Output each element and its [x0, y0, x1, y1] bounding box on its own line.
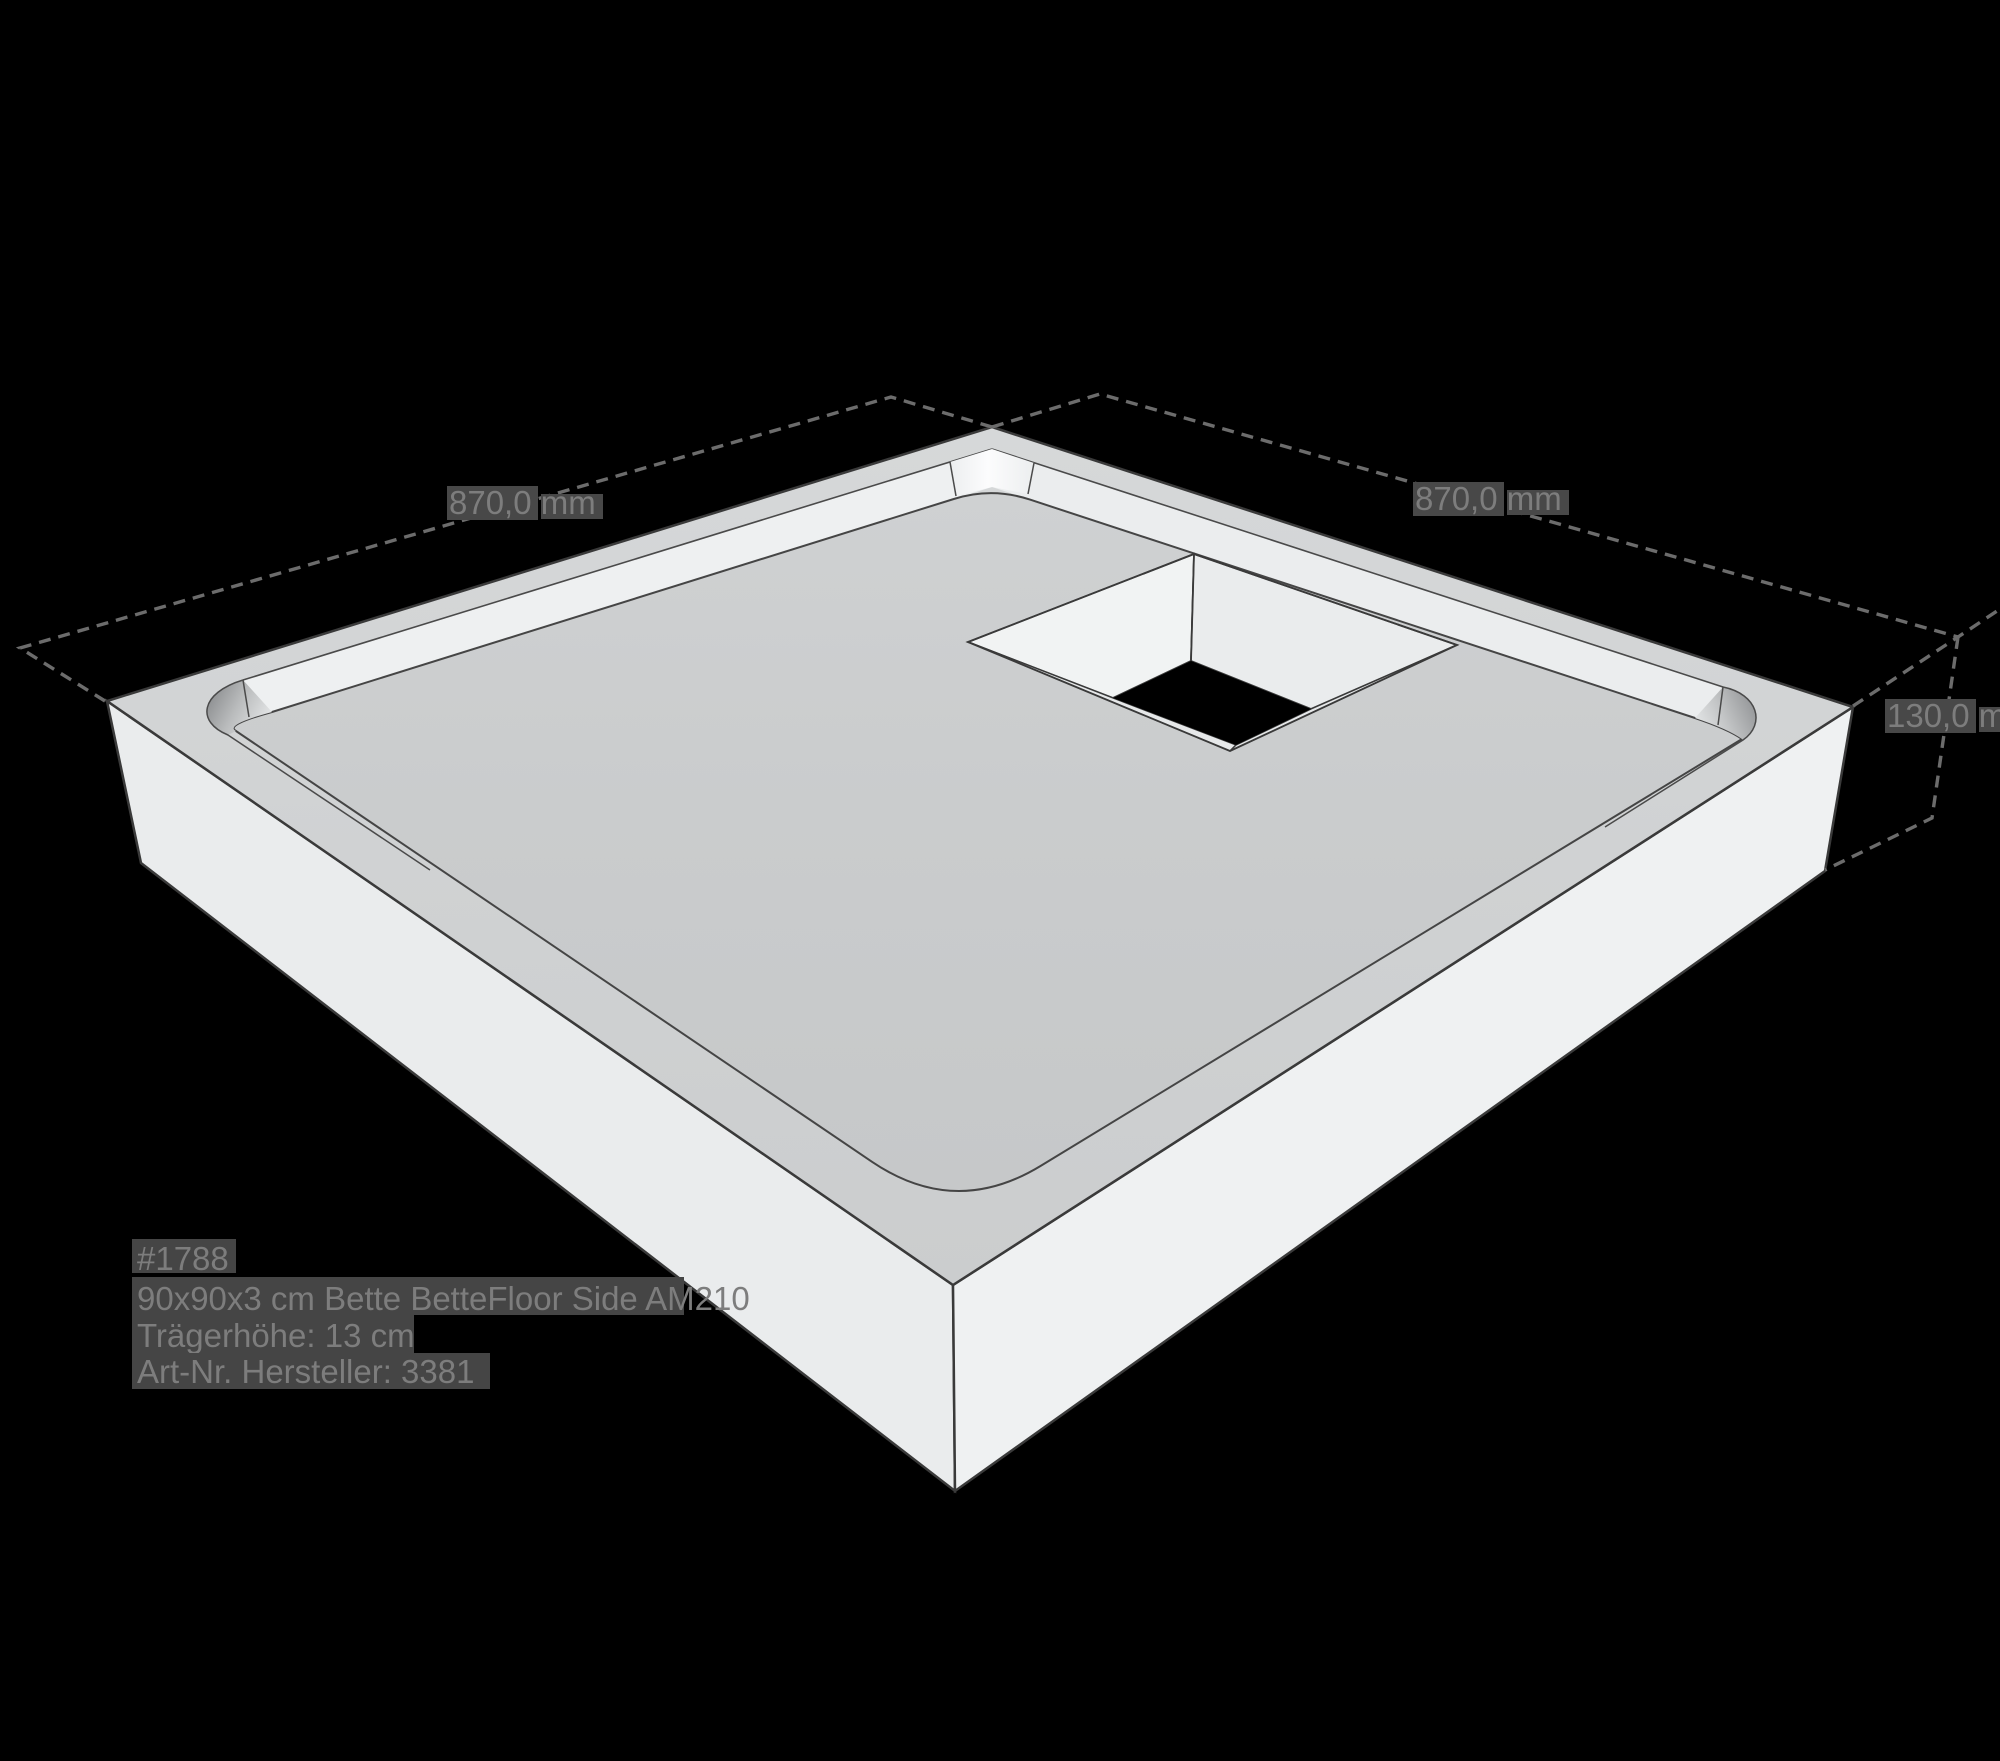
svg-text:870,0 mm: 870,0 mm: [1415, 480, 1562, 517]
svg-text:90x90x3 cm Bette BetteFloor Si: 90x90x3 cm Bette BetteFloor Side AM210: [137, 1280, 750, 1317]
svg-text:Art-Nr. Hersteller: 3381: Art-Nr. Hersteller: 3381: [137, 1353, 474, 1390]
svg-text:#1788: #1788: [137, 1240, 229, 1277]
svg-text:870,0 mm: 870,0 mm: [449, 484, 596, 521]
svg-text:Trägerhöhe: 13 cm: Trägerhöhe: 13 cm: [137, 1317, 415, 1354]
svg-text:130,0 mm: 130,0 mm: [1887, 697, 2000, 734]
